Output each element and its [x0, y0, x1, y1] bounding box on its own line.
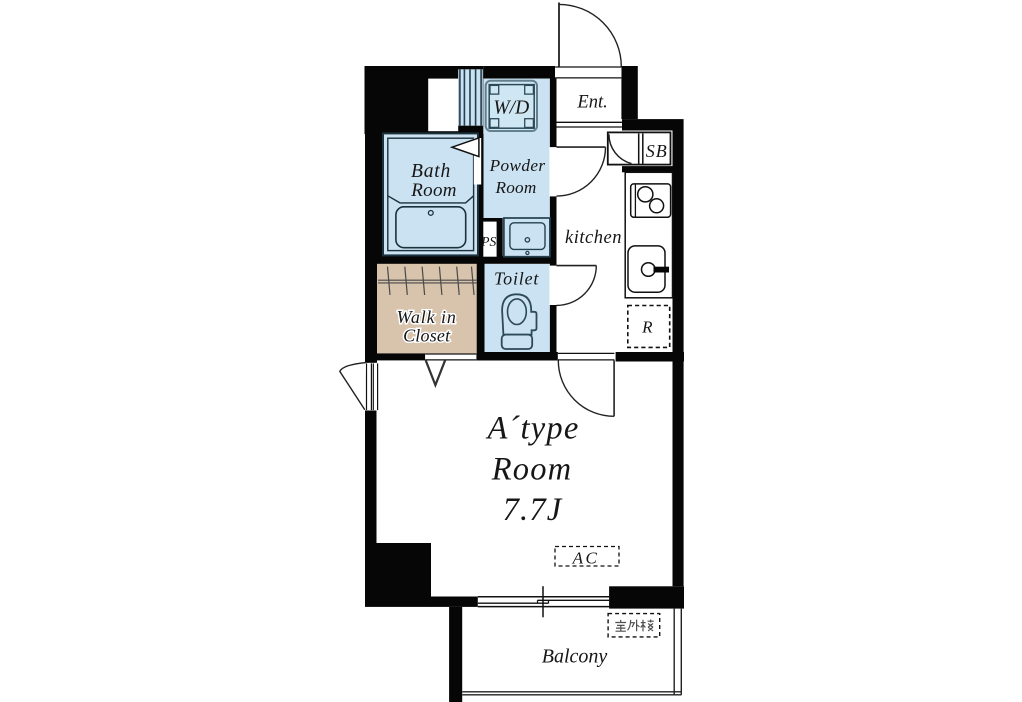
- svg-text:Walk in: Walk in: [397, 307, 457, 327]
- svg-text:Room: Room: [410, 180, 457, 201]
- svg-text:AC: AC: [572, 549, 600, 568]
- svg-text:R: R: [641, 317, 653, 336]
- svg-text:Room: Room: [495, 178, 537, 197]
- svg-text:Balcony: Balcony: [542, 646, 608, 668]
- svg-text:W/D: W/D: [493, 97, 529, 118]
- svg-text:Ent.: Ent.: [576, 93, 607, 113]
- svg-text:SB: SB: [646, 141, 668, 161]
- svg-text:A´type: A´type: [485, 411, 579, 447]
- svg-text:Room: Room: [491, 451, 573, 487]
- svg-text:Powder: Powder: [489, 156, 546, 175]
- svg-text:PS: PS: [480, 234, 496, 249]
- svg-text:Toilet: Toilet: [494, 269, 539, 289]
- svg-text:Closet: Closet: [403, 326, 451, 346]
- svg-text:7.7J: 7.7J: [503, 492, 563, 528]
- svg-text:Bath: Bath: [411, 161, 451, 182]
- svg-text:kitchen: kitchen: [565, 228, 622, 248]
